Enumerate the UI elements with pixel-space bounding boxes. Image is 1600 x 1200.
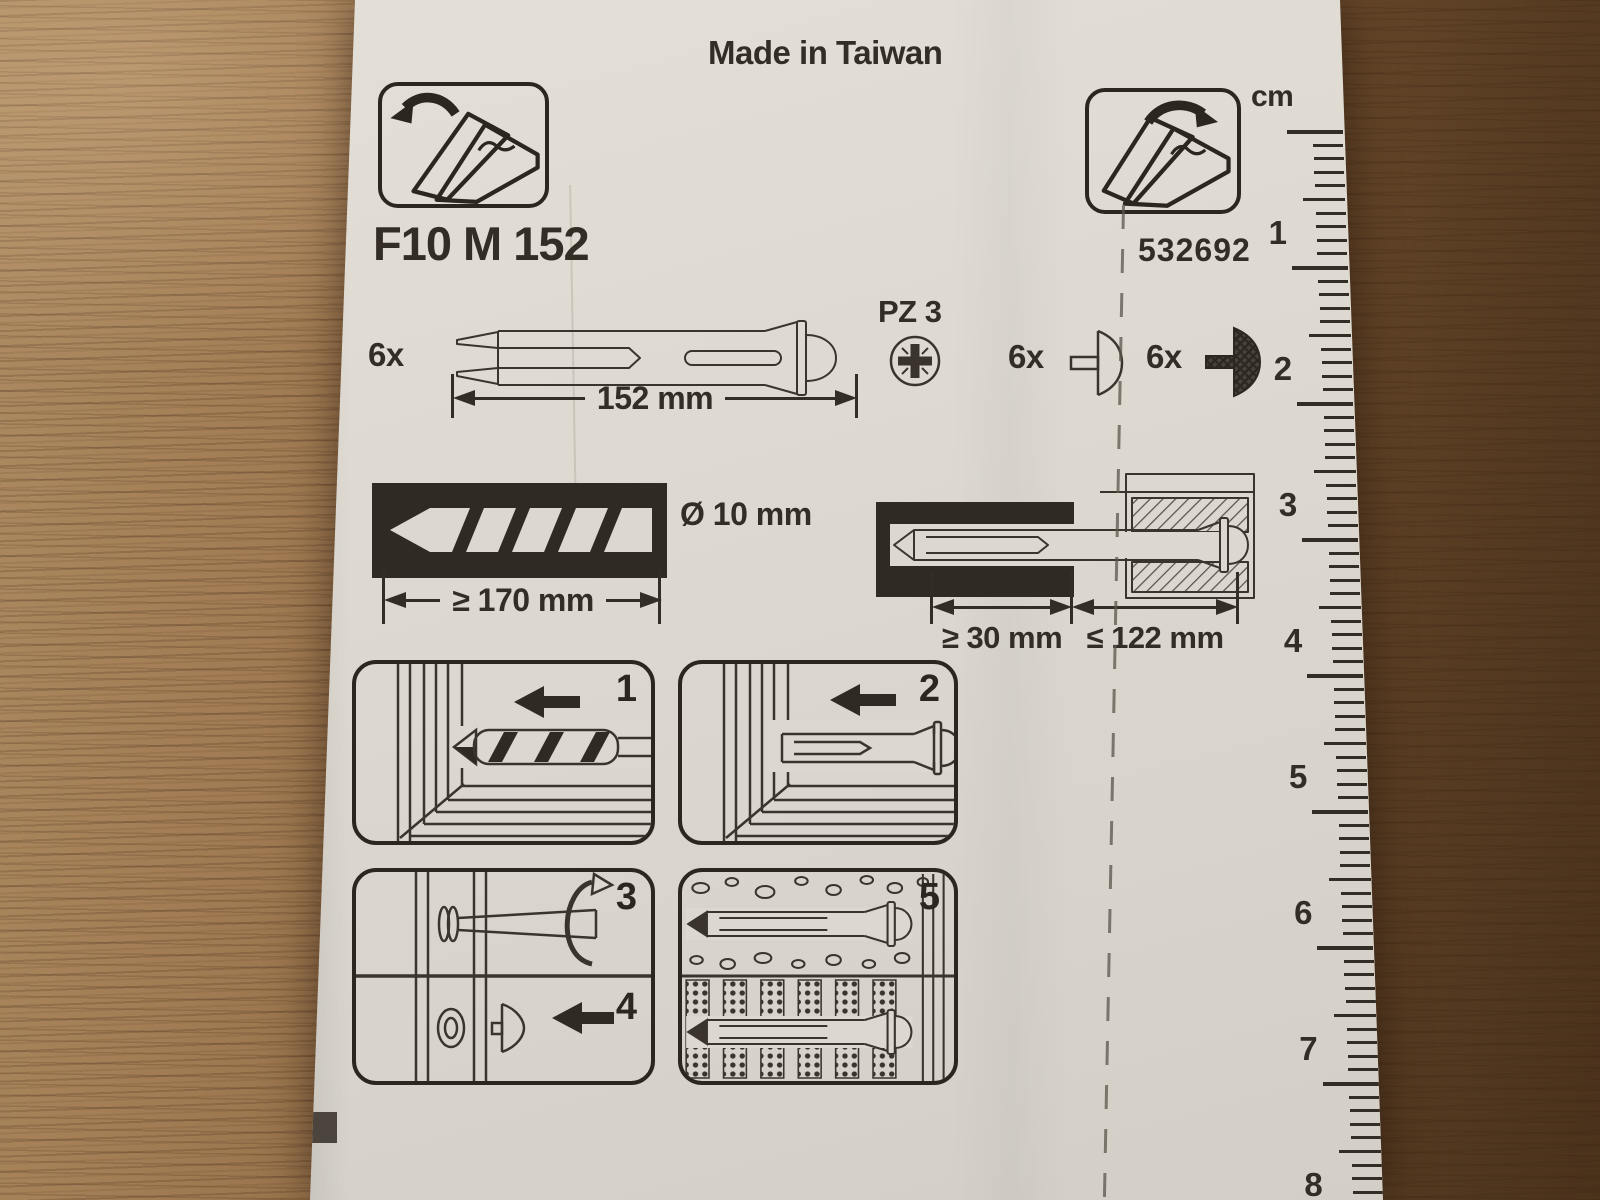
hole-depth-value: ≥ 170 mm [440,582,606,619]
ruler-tick [1342,919,1372,922]
ruler-tick [1328,524,1358,527]
ruler-tick [1322,375,1352,378]
step-3-4-screw-and-cap-illustration: 3 4 [352,868,655,1085]
fold-out-leaflet-icon-right [1085,88,1241,214]
step-number: 4 [616,988,637,1026]
ruler-tick [1320,307,1350,310]
ruler-tick [1324,416,1354,419]
anchor-length-value: 152 mm [585,380,725,417]
anchorage-depth-value: ≥ 30 mm [922,620,1082,656]
ruler-tick [1334,701,1364,704]
arrowhead-right [640,592,662,608]
article-number: 532692 [1138,232,1251,269]
step-2-drawing [682,664,954,841]
ruler-tick [1317,239,1347,242]
ruler-tick [1323,388,1353,391]
ruler-tick [1307,674,1363,678]
flap-open-arrow-left-icon [382,86,545,204]
ruler-tick [1350,1123,1380,1126]
ruler-tick [1329,565,1359,568]
step-2-insert-anchor-illustration: 2 [678,660,958,845]
ruler-tick [1352,1164,1382,1167]
drill-diameter-label: Ø 10 mm [680,496,812,533]
drill-hole-block [372,483,667,578]
made-in-label: Made in Taiwan [708,34,942,72]
ruler-tick [1303,198,1345,201]
step-1-drawing [356,664,651,841]
ruler-tick [1321,348,1351,351]
ruler-tick [1349,1096,1379,1099]
ruler-tick [1315,184,1345,187]
arrowhead-right [1050,599,1072,615]
ruler-tick [1323,1082,1379,1086]
step-number: 1 [616,670,637,708]
ruler-tick [1318,280,1348,283]
ruler-tick [1314,171,1344,174]
ruler-tick [1336,756,1366,759]
ruler-tick [1326,484,1356,487]
fixture-thickness-dimension [1072,592,1238,622]
ruler-tick [1335,728,1365,731]
ruler-tick [1317,252,1347,255]
step-3-4-drawing [356,872,651,1081]
ruler-unit-label: cm [1251,80,1293,114]
ruler-tick [1344,960,1374,963]
ruler-tick [1302,538,1358,542]
ruler-tick [1347,1028,1377,1031]
ruler-tick [1331,620,1361,623]
ruler-tick [1350,1109,1380,1112]
ruler-tick [1327,497,1357,500]
ruler-tick [1325,456,1355,459]
ruler-tick [1332,633,1362,636]
ruler-tick [1287,130,1343,134]
ruler-tick [1309,334,1351,337]
fixture-thickness-value: ≤ 122 mm [1075,620,1235,656]
ruler-tick [1314,157,1344,160]
ruler-tick [1338,796,1368,799]
ruler-tick [1348,1068,1378,1071]
ruler-tick [1339,1150,1381,1153]
step-number: 5 [919,878,940,916]
ruler-tick [1333,660,1363,663]
ruler-tick [1332,647,1362,650]
step-5-wall-types-illustration: 5 [678,868,958,1085]
arrowhead-right [835,390,857,406]
drill-bit-icon [372,483,667,578]
cap-dark-quantity: 6x [1146,338,1182,376]
instruction-sheet: Made in Taiwan F10 M 152 532692 [310,0,1385,1200]
ruler-tick [1339,824,1369,827]
ruler-tick [1320,320,1350,323]
ruler-tick [1316,212,1346,215]
ruler-tick [1312,810,1368,814]
ruler-tick [1325,443,1355,446]
anchor-quantity: 6x [368,336,404,374]
ruler-tick [1337,769,1367,772]
ruler-tick [1329,552,1359,555]
fold-out-leaflet-icon [378,82,549,208]
hole-depth-dimension: ≥ 170 mm [384,582,662,618]
ruler-number: 4 [1245,622,1301,660]
anchor-length-dimension: 152 mm [453,380,857,416]
ruler-tick [1339,837,1369,840]
ruler-tick [1319,606,1361,609]
ruler-tick [1344,973,1374,976]
screw-drive-label: PZ 3 [878,294,941,330]
ruler-number: 7 [1261,1030,1317,1068]
arrowhead-left [453,390,475,406]
ruler-number: 5 [1250,758,1306,796]
ruler-number: 8 [1266,1166,1322,1200]
ruler-tick [1316,225,1346,228]
step-number: 2 [919,670,940,708]
ruler-number: 6 [1255,894,1311,932]
ruler-tick [1345,987,1375,990]
ruler-tick [1334,1014,1376,1017]
ruler-tick [1334,688,1364,691]
cover-cap-light-icon [1068,326,1124,400]
ruler-tick [1342,905,1372,908]
ruler-tick [1313,144,1343,147]
arrowhead-left [384,592,406,608]
ruler-tick [1348,1055,1378,1058]
ruler-tick [1330,579,1360,582]
ruler-tick [1352,1177,1382,1180]
product-code: F10 M 152 [373,216,589,271]
step-number: 3 [616,878,637,916]
ruler-tick [1292,266,1348,270]
step-1-drill-illustration: 1 [352,660,655,845]
ruler-tick [1347,1041,1377,1044]
ruler-tick [1327,511,1357,514]
ruler-tick [1324,429,1354,432]
ruler-tick [1346,1000,1376,1003]
flap-open-arrow-right-icon [1089,92,1237,210]
ruler-tick [1324,742,1366,745]
wall-section-illustration [868,462,1263,602]
arrowhead-right [1216,599,1238,615]
cap-light-quantity: 6x [1008,338,1044,376]
step-5-drawing [682,872,954,1081]
ruler-tick [1335,715,1365,718]
ruler-tick [1340,864,1370,867]
cover-cap-dark-icon [1202,322,1262,402]
anchorage-depth-dimension [932,592,1072,622]
ruler-tick [1297,402,1353,406]
ruler-tick [1314,470,1356,473]
ruler-tick [1322,361,1352,364]
sheet-shadow-wrap: Made in Taiwan F10 M 152 532692 [0,0,1600,1200]
pozidriv-pz3-icon [888,334,942,388]
ruler-tick [1329,878,1371,881]
photo-instruction-leaflet: Made in Taiwan F10 M 152 532692 [0,0,1600,1200]
ruler-tick [1351,1136,1381,1139]
arrowhead-left [1072,599,1094,615]
ruler-tick [1341,892,1371,895]
ruler-tick [1330,592,1360,595]
ruler-tick [1353,1191,1383,1194]
print-registration-mark [310,1112,337,1143]
ruler-tick [1340,851,1370,854]
ruler-tick [1319,293,1349,296]
ruler-tick [1343,932,1373,935]
ruler-tick [1337,783,1367,786]
ruler-tick [1317,946,1373,950]
arrowhead-left [932,599,954,615]
